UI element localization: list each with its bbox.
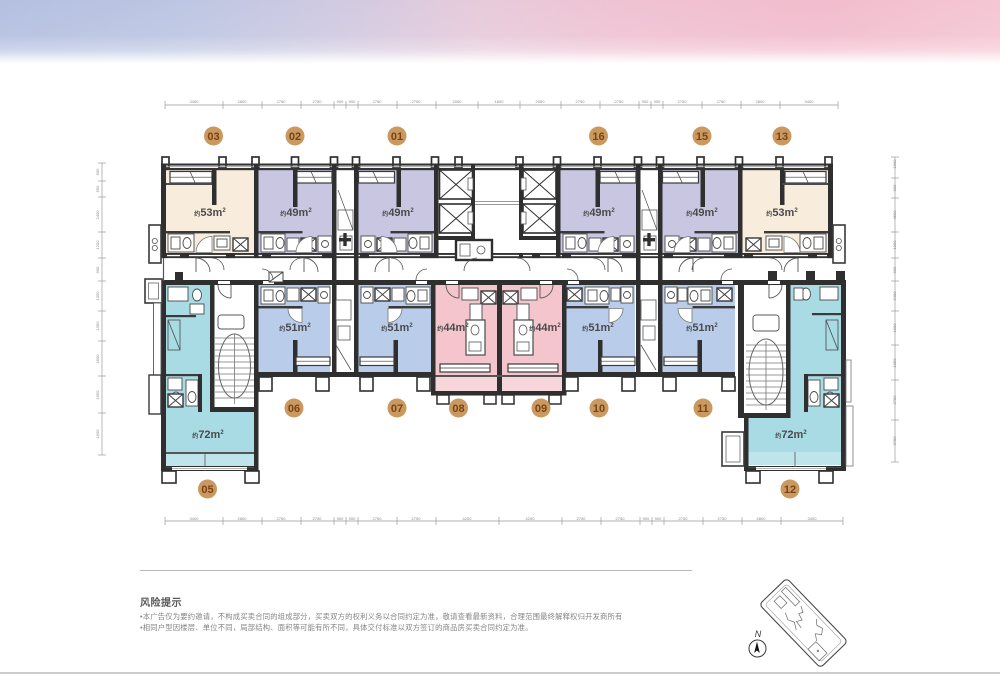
svg-text:4200: 4200 — [526, 516, 536, 521]
svg-text:15: 15 — [696, 131, 708, 143]
svg-text:600: 600 — [95, 168, 100, 175]
svg-text:12: 12 — [784, 484, 796, 496]
svg-text:2750: 2750 — [717, 99, 727, 104]
svg-text:2750: 2750 — [313, 516, 323, 521]
svg-text:900: 900 — [654, 99, 661, 104]
svg-text:900: 900 — [349, 99, 356, 104]
svg-text:2750: 2750 — [277, 99, 287, 104]
svg-text:2750: 2750 — [373, 516, 383, 521]
svg-text:1200: 1200 — [892, 240, 897, 250]
svg-text:07: 07 — [391, 403, 403, 415]
svg-text:900: 900 — [337, 99, 344, 104]
svg-text:900: 900 — [95, 266, 100, 273]
svg-text:3750: 3750 — [892, 436, 897, 446]
svg-text:2400: 2400 — [892, 291, 897, 301]
svg-text:2750: 2750 — [277, 516, 287, 521]
svg-text:1600: 1600 — [495, 99, 505, 104]
svg-text:1650: 1650 — [95, 390, 100, 400]
svg-text:1350: 1350 — [95, 291, 100, 301]
svg-text:2750: 2750 — [577, 516, 587, 521]
svg-text:2750: 2750 — [718, 516, 728, 521]
svg-text:11: 11 — [697, 403, 709, 415]
svg-text:2050: 2050 — [536, 99, 546, 104]
svg-text:900: 900 — [642, 99, 649, 104]
svg-text:08: 08 — [452, 403, 464, 415]
svg-text:1600: 1600 — [892, 159, 897, 169]
svg-text:02: 02 — [289, 131, 301, 143]
svg-text:3400: 3400 — [805, 99, 815, 104]
svg-text:09: 09 — [535, 403, 547, 415]
svg-text:3400: 3400 — [190, 516, 200, 521]
svg-text:4200: 4200 — [463, 516, 473, 521]
svg-text:2800: 2800 — [238, 516, 248, 521]
svg-text:3400: 3400 — [808, 516, 818, 521]
svg-text:2800: 2800 — [238, 99, 248, 104]
svg-text:900: 900 — [892, 184, 897, 191]
svg-text:03: 03 — [207, 131, 219, 143]
svg-text:13: 13 — [776, 131, 788, 143]
svg-text:600: 600 — [95, 185, 100, 192]
svg-text:1600: 1600 — [892, 323, 897, 333]
svg-text:2750: 2750 — [679, 516, 689, 521]
svg-text:900: 900 — [643, 516, 650, 521]
svg-text:900: 900 — [892, 266, 897, 273]
svg-text:10: 10 — [593, 403, 605, 415]
svg-text:2750: 2750 — [615, 99, 625, 104]
svg-text:2750: 2750 — [313, 99, 323, 104]
svg-text:2750: 2750 — [412, 99, 422, 104]
svg-text:900: 900 — [349, 516, 356, 521]
svg-text:01: 01 — [391, 131, 403, 143]
svg-text:2400: 2400 — [95, 210, 100, 220]
svg-text:900: 900 — [655, 516, 662, 521]
svg-text:2750: 2750 — [412, 516, 422, 521]
svg-text:1900: 1900 — [95, 429, 100, 439]
svg-text:2750: 2750 — [616, 516, 626, 521]
svg-text:16: 16 — [592, 131, 604, 143]
svg-text:2800: 2800 — [756, 99, 766, 104]
svg-text:1650: 1650 — [892, 358, 897, 368]
svg-text:2750: 2750 — [373, 99, 383, 104]
svg-text:2750: 2750 — [892, 395, 897, 405]
svg-text:1200: 1200 — [95, 240, 100, 250]
svg-text:1600: 1600 — [95, 354, 100, 364]
svg-text:2050: 2050 — [453, 99, 463, 104]
svg-text:2750: 2750 — [576, 99, 586, 104]
svg-text:06: 06 — [288, 403, 300, 415]
svg-text:900: 900 — [337, 516, 344, 521]
svg-text:3400: 3400 — [190, 99, 200, 104]
svg-text:1350: 1350 — [95, 321, 100, 331]
svg-text:4500: 4500 — [892, 210, 897, 220]
svg-text:2750: 2750 — [678, 99, 688, 104]
svg-text:2800: 2800 — [757, 516, 767, 521]
svg-text:05: 05 — [201, 484, 213, 496]
